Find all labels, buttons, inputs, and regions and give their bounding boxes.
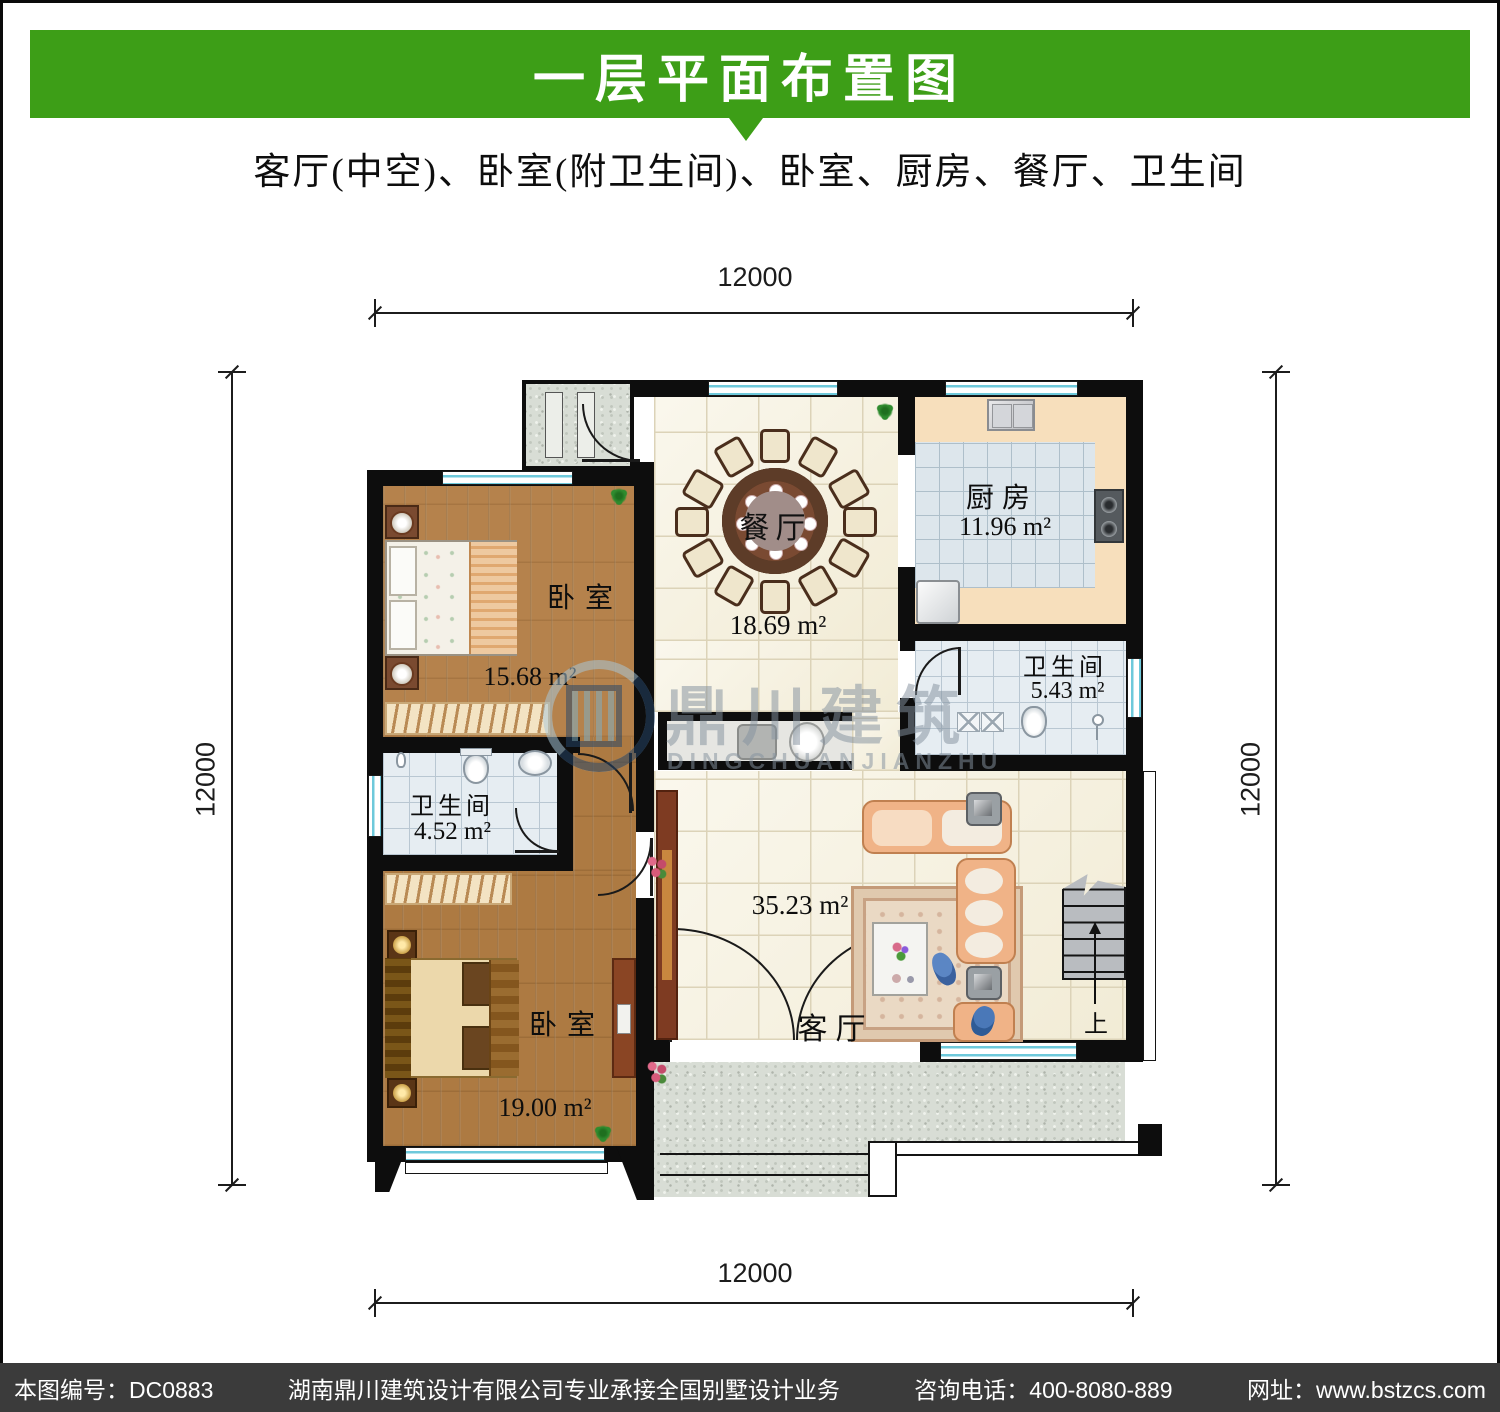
door-leaf xyxy=(958,647,961,695)
side-table-top xyxy=(974,800,992,816)
terrace-corner-post xyxy=(1138,1124,1162,1156)
dining-chair xyxy=(675,507,709,537)
dim-bottom-label: 12000 xyxy=(690,1258,820,1289)
shower-head xyxy=(1092,714,1104,726)
dim-right-line xyxy=(1275,372,1277,1186)
footer-company: 湖南鼎川建筑设计有限公司专业承接全国别墅设计业务 xyxy=(288,1371,840,1405)
hall-passage-floor xyxy=(852,712,900,771)
footer-phone: 咨询电话：400-8080-889 xyxy=(914,1371,1172,1405)
pillow xyxy=(389,546,417,596)
wash-counter-cabinet xyxy=(737,724,777,760)
flower-pot xyxy=(645,853,669,881)
label-bath-right: 卫生间 xyxy=(1000,647,1130,682)
room-list-subtitle: 客厅(中空)、卧室(附卫生间)、卧室、厨房、餐厅、卫生间 xyxy=(0,141,1500,195)
window-bedroom-bottom xyxy=(405,1147,605,1161)
fridge xyxy=(916,580,960,624)
porch-step-line xyxy=(660,1153,868,1155)
sink-basin xyxy=(992,404,1012,428)
side-table xyxy=(966,966,1002,1000)
window-dining xyxy=(708,381,838,396)
door-leaf xyxy=(515,850,559,853)
toilet-tank xyxy=(460,748,492,756)
nightstand xyxy=(385,656,419,690)
kitchen-sink xyxy=(987,399,1035,431)
entry-porch-steps xyxy=(654,1141,868,1197)
shower-head xyxy=(396,752,406,768)
sink-basin xyxy=(1013,404,1033,428)
label-dining: 餐厅 xyxy=(718,503,833,547)
sofa-main xyxy=(956,858,1016,964)
side-table-top xyxy=(974,974,992,990)
stairs-arrow-head xyxy=(1089,922,1101,934)
kitchen-stove xyxy=(1094,489,1124,543)
page-title: 一层平面布置图 xyxy=(533,37,967,112)
door-leaf xyxy=(582,459,640,462)
wall-bath-right-stub xyxy=(900,641,915,651)
wall-mid-upper xyxy=(636,753,654,832)
sofa-cushion xyxy=(965,932,1003,958)
porch-step-line xyxy=(660,1174,868,1176)
stairs-arrow-line xyxy=(1094,930,1096,1004)
area-dining: 18.69 m² xyxy=(713,610,843,641)
entry-column-slot xyxy=(545,392,563,458)
sofa-cushion xyxy=(872,810,932,846)
plant-icon xyxy=(610,487,628,505)
header-pointer-triangle xyxy=(729,118,763,141)
area-living: 35.23 m² xyxy=(735,890,865,921)
window-bath-left xyxy=(368,775,382,837)
toilet xyxy=(1021,706,1047,738)
dim-left-line xyxy=(231,372,233,1186)
bed-headboard xyxy=(385,958,411,1078)
vanity-tile xyxy=(981,712,1004,732)
burner xyxy=(1101,521,1117,537)
wall-mid-lower xyxy=(636,898,654,1162)
wall-right-outer xyxy=(1126,380,1143,1062)
sofa-cushion xyxy=(965,868,1003,894)
sink xyxy=(518,750,552,776)
label-kitchen: 厨房 xyxy=(937,476,1067,516)
label-bedroom-bottom: 卧室 xyxy=(502,1003,632,1043)
stairs-up-label: 上 xyxy=(1073,1004,1119,1039)
label-bath-left: 卫生间 xyxy=(387,786,517,821)
plant-icon xyxy=(876,402,894,420)
sofa-cushion xyxy=(965,900,1003,926)
table-item xyxy=(907,976,914,983)
floor-plan-page: 一层平面布置图 客厅(中空)、卧室(附卫生间)、卧室、厨房、餐厅、卫生间 120… xyxy=(0,0,1500,1412)
wall-bath-left-right xyxy=(557,753,573,855)
coffee-table xyxy=(872,922,928,996)
area-bedroom-top: 15.68 m² xyxy=(465,662,595,692)
label-living: 客厅 xyxy=(773,1004,898,1048)
wardrobe-top xyxy=(385,702,550,735)
dining-chair xyxy=(760,580,790,614)
dim-right-label: 12000 xyxy=(1236,715,1267,845)
terrace-edge-band xyxy=(868,1141,1140,1156)
area-bedroom-bottom: 19.00 m² xyxy=(480,1093,610,1123)
dim-left-label: 12000 xyxy=(191,715,222,845)
terrace-step-notch xyxy=(868,1141,897,1197)
nightstand xyxy=(385,505,419,539)
area-bath-right: 5.43 m² xyxy=(1005,678,1130,705)
wall-bath-right-bottom xyxy=(900,755,1143,771)
footer-website: 网址：www.bstzcs.com xyxy=(1247,1371,1486,1405)
window-kitchen xyxy=(945,381,1078,396)
wash-basin xyxy=(789,722,825,762)
dim-top-line xyxy=(375,312,1133,314)
entry-porch xyxy=(654,1062,1125,1141)
flower-vase xyxy=(888,938,914,964)
lamp-glow xyxy=(393,936,411,954)
wardrobe-bottom xyxy=(385,873,512,905)
door-arc-bedroom-bottom xyxy=(598,840,652,896)
burner xyxy=(1101,497,1117,513)
footer-drawing-number: 本图编号：DC0883 xyxy=(14,1371,213,1405)
side-table xyxy=(966,792,1002,826)
dim-top-label: 12000 xyxy=(690,262,820,293)
header-bar: 一层平面布置图 xyxy=(30,30,1470,118)
dining-passage-floor xyxy=(654,641,898,712)
door-leaf xyxy=(629,753,632,813)
pillow xyxy=(389,600,417,650)
shower-hose xyxy=(1096,726,1098,740)
dim-bottom-line xyxy=(375,1302,1133,1304)
wall-bath-left-bottom xyxy=(367,855,573,871)
lamp-glow xyxy=(393,1084,411,1102)
bed-blanket xyxy=(469,542,517,654)
dining-chair xyxy=(760,429,790,463)
wall-kitchen-left-top xyxy=(898,397,915,455)
area-kitchen: 11.96 m² xyxy=(940,512,1070,542)
area-bath-left: 4.52 m² xyxy=(390,818,515,846)
vanity-tile xyxy=(957,712,980,732)
table-item xyxy=(892,974,901,983)
tv-cabinet-living xyxy=(656,790,678,1040)
eave-outline xyxy=(1143,771,1156,1061)
window-sill xyxy=(405,1162,608,1174)
lamp-table xyxy=(387,1078,417,1108)
lamp-table xyxy=(387,930,417,960)
flower-pot xyxy=(645,1058,669,1086)
wall-chamfer-left xyxy=(375,1162,401,1192)
label-bedroom-top: 卧室 xyxy=(520,576,650,616)
wall-kitchen-bottom xyxy=(898,624,1143,641)
wall-chamfer-porch xyxy=(616,1146,654,1200)
plant-icon xyxy=(594,1124,612,1142)
footer-bar: 本图编号：DC0883 湖南鼎川建筑设计有限公司专业承接全国别墅设计业务 咨询电… xyxy=(0,1363,1500,1412)
toilet xyxy=(463,754,489,784)
window-living xyxy=(940,1042,1077,1060)
dining-chair xyxy=(843,507,877,537)
window-bedroom-top xyxy=(442,471,573,485)
